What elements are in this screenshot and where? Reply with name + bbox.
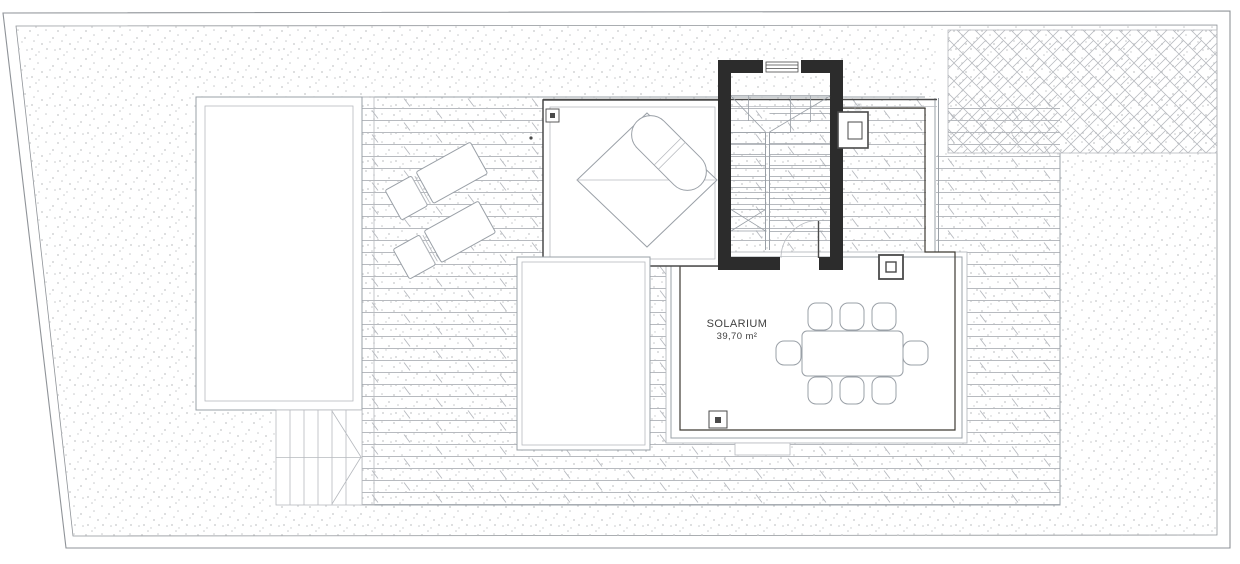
room-name: SOLARIUM xyxy=(707,318,768,330)
dining-table xyxy=(802,331,903,376)
floor-plan-page: SOLARIUM 39,70 m² xyxy=(0,0,1240,564)
chair xyxy=(840,377,864,404)
floor-plan-canvas: SOLARIUM 39,70 m² xyxy=(0,0,1240,564)
chair xyxy=(840,303,864,330)
column-symbol xyxy=(879,255,903,279)
chair xyxy=(872,377,896,404)
survey-point xyxy=(529,136,532,139)
pool xyxy=(196,97,362,410)
garden-steps xyxy=(276,410,362,505)
roof-drain-bedroom xyxy=(546,109,559,122)
herringbone-paving xyxy=(936,30,1217,153)
roof-drain-solarium xyxy=(709,411,727,428)
chair xyxy=(808,377,832,404)
stair-window xyxy=(763,59,801,74)
chair xyxy=(903,341,928,365)
deck-step-notch xyxy=(735,443,790,455)
lower-roof-block xyxy=(517,257,650,450)
chair xyxy=(808,303,832,330)
chair xyxy=(776,341,801,365)
chair xyxy=(872,303,896,330)
room-area: 39,70 m² xyxy=(717,331,758,342)
